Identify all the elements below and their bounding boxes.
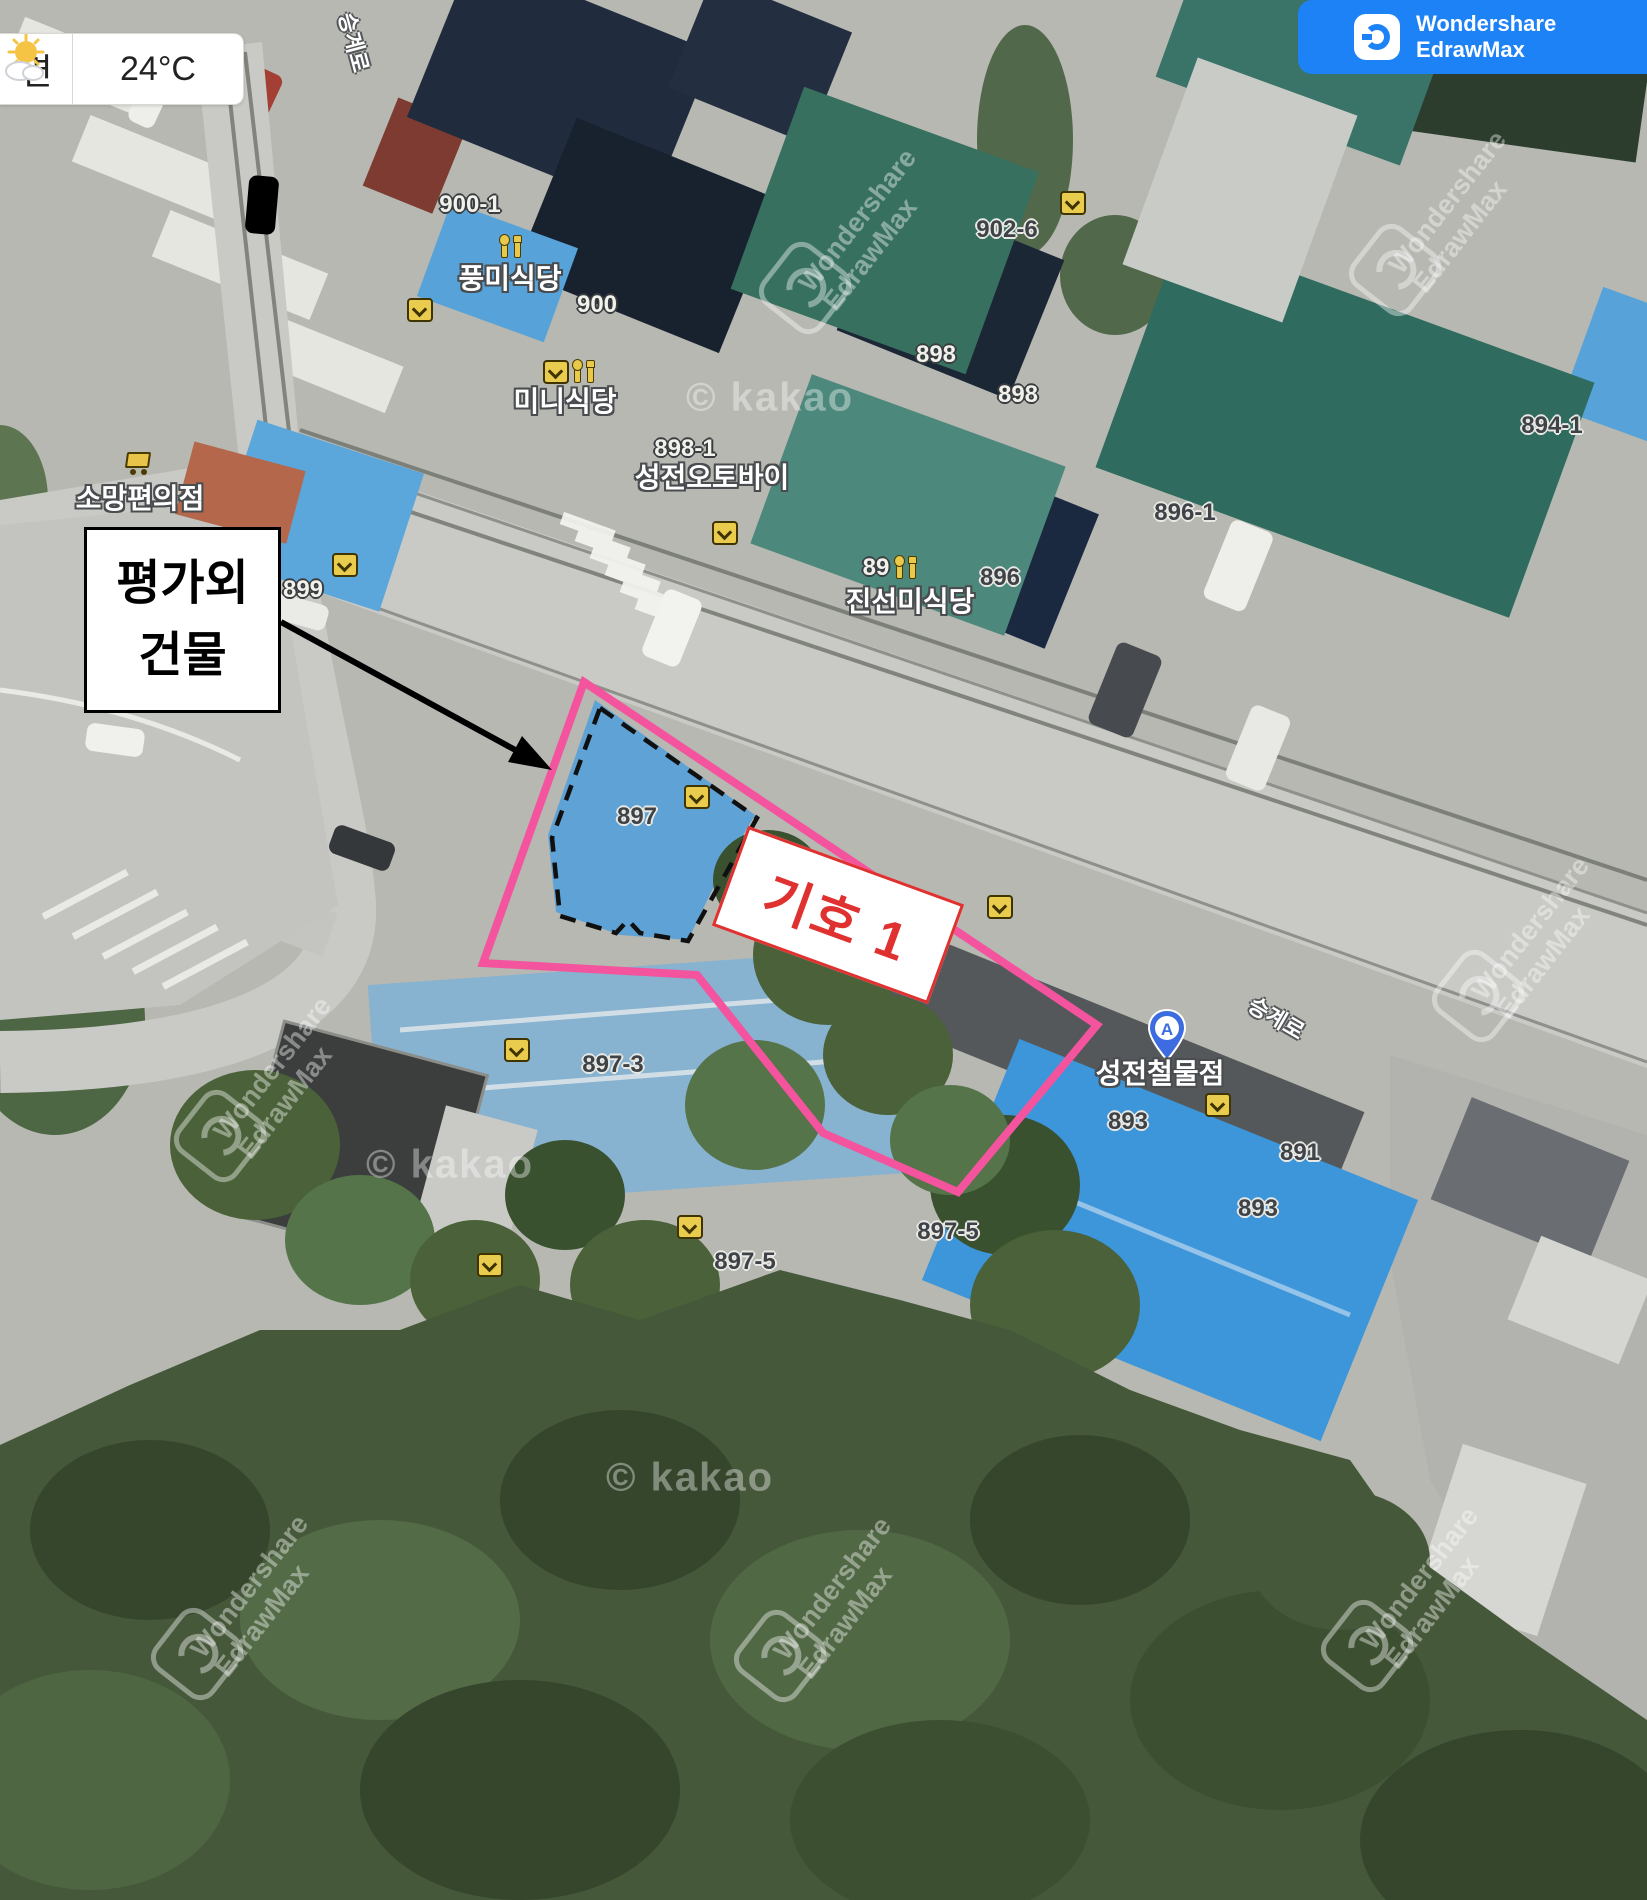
brand-line1: Wondershare <box>1416 11 1556 36</box>
excluded-building-text-line1: 평가외 <box>116 548 248 620</box>
satellite-map-canvas[interactable]: WondershareEdrawMaxWondershareEdrawMaxWo… <box>0 0 1647 1900</box>
edrawmax-logo-icon <box>1354 14 1400 60</box>
weather-widget[interactable]: 면 24°C <box>0 33 244 105</box>
excluded-building-text-line2: 건물 <box>138 620 226 692</box>
edrawmax-brand-badge: Wondershare EdrawMax <box>1298 0 1647 74</box>
temperature-value: 24°C <box>120 50 196 89</box>
arrow-connector <box>281 622 552 770</box>
excluded-building-callout: 평가외 건물 <box>84 527 281 713</box>
sun-cloud-icon <box>0 34 50 82</box>
brand-line2: EdrawMax <box>1416 37 1525 62</box>
